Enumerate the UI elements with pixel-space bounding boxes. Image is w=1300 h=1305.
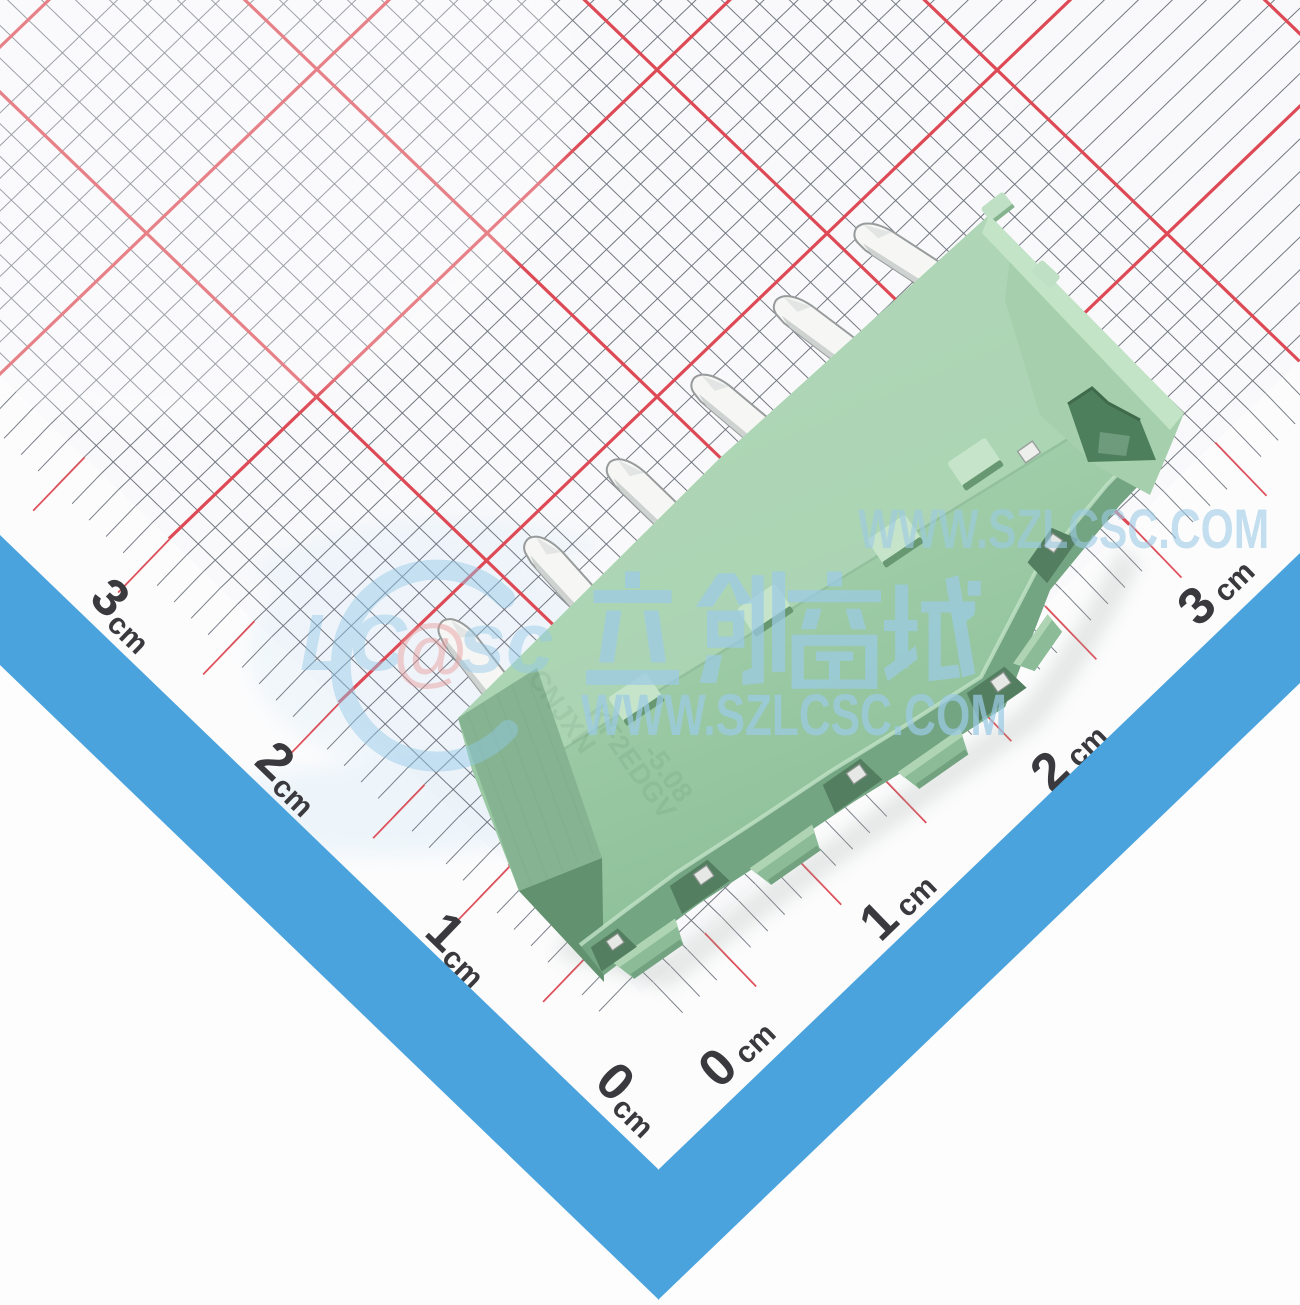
svg-text:WWW.SZLCSC.COM: WWW.SZLCSC.COM	[858, 497, 1269, 560]
svg-text:sc: sc	[458, 595, 554, 691]
svg-text:@: @	[392, 610, 466, 695]
svg-text:WWW.SZLCSC.COM: WWW.SZLCSC.COM	[581, 682, 1007, 747]
